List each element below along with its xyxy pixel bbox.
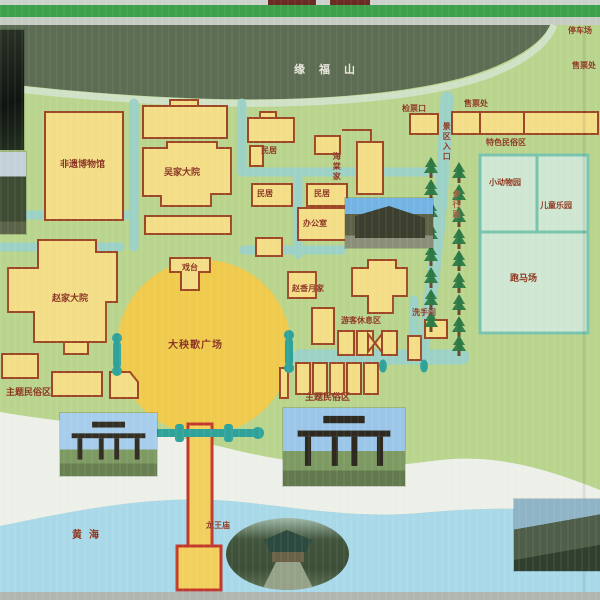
label-minju-3: 民居 <box>314 189 330 198</box>
photo-old-house <box>345 198 433 248</box>
building-pentagon <box>110 372 138 398</box>
label-dragon-temple: 龙王庙 <box>206 521 230 530</box>
temple-silhouette <box>226 518 349 590</box>
label-minju-2: 民居 <box>257 189 273 198</box>
label-zoo: 小动物园 <box>489 178 521 187</box>
photo-archway-right <box>283 408 405 486</box>
rest-booth-3 <box>382 331 397 355</box>
label-walking-road: 步行路 <box>452 190 461 220</box>
building-cluster-1 <box>248 118 294 142</box>
label-folk-area: 特色民俗区 <box>486 138 526 147</box>
sign-bottom-edge <box>0 592 600 600</box>
archway-silhouette <box>283 408 405 486</box>
label-zhaoxiangyue-home: 赵香月家 <box>292 284 324 293</box>
stall-5 <box>364 363 378 394</box>
stall-0 <box>280 368 288 398</box>
label-parking: 停车场 <box>568 26 592 35</box>
road-bollard <box>420 360 428 373</box>
label-museum: 非遗博物馆 <box>60 160 105 170</box>
building-left-1 <box>52 372 102 396</box>
label-mountain-name: 缘福山 <box>294 64 369 77</box>
scenic-area-map-sign: 缘福山 停车场 售票处 检票口 售票处 景区入口 步行路 特色民俗区 小动物园 … <box>0 0 600 600</box>
label-zhao-courtyard: 赵家大院 <box>52 294 88 304</box>
building-cluster-4 <box>256 238 282 256</box>
building-cluster-6 <box>312 308 334 344</box>
label-minju-1: 民居 <box>261 146 277 155</box>
sign-green-frame <box>0 5 600 17</box>
photo-left-top <box>0 30 24 150</box>
building-wu-bar <box>145 216 231 234</box>
map-terrain <box>0 0 600 600</box>
stall-1 <box>296 363 310 394</box>
building-zhao-tab <box>64 342 88 354</box>
label-ticket-check: 检票口 <box>402 104 426 113</box>
archway-silhouette <box>60 413 157 476</box>
label-ticket-office: 售票处 <box>464 99 488 108</box>
building-ticket-check <box>410 114 438 134</box>
label-theme-folk-left: 主题民俗区 <box>6 388 51 398</box>
stall-4 <box>347 363 361 394</box>
photo-dragon-temple <box>226 518 349 590</box>
gate-marker-right <box>284 330 294 373</box>
photo-archway-left <box>60 413 157 476</box>
label-yangge-square: 大秧歌广场 <box>168 340 223 352</box>
house-silhouette <box>345 198 433 248</box>
photo-coast <box>514 499 600 571</box>
label-ticket-office-right: 售票处 <box>572 61 596 70</box>
label-toilet: 洗手间 <box>412 308 436 317</box>
label-stage: 戏台 <box>182 263 198 272</box>
label-rest-area: 游客休息区 <box>341 316 381 325</box>
rest-booth-1 <box>338 331 354 355</box>
sign-white-edge <box>0 17 600 25</box>
road-bollard <box>379 360 387 373</box>
label-yellow-sea: 黄海 <box>72 530 106 542</box>
building-wu-top <box>143 106 227 138</box>
stall-2 <box>313 363 327 394</box>
building-haitang <box>357 142 383 194</box>
label-theme-folk-right: 主题民俗区 <box>305 393 350 403</box>
building-left-2 <box>2 354 38 378</box>
photo-left-bottom <box>0 152 26 234</box>
stall-3 <box>330 363 344 394</box>
label-wu-courtyard: 吴家大院 <box>164 168 200 178</box>
label-children-park: 儿童乐园 <box>540 201 572 210</box>
pier-platform <box>177 546 221 590</box>
building-small <box>408 336 421 360</box>
label-haitang-home: 海棠家 <box>332 152 341 182</box>
gate-marker-left <box>112 333 122 376</box>
label-office: 办公室 <box>303 219 327 228</box>
label-scenic-entrance: 景区入口 <box>442 122 451 162</box>
label-horse-ground: 跑马场 <box>510 274 537 284</box>
